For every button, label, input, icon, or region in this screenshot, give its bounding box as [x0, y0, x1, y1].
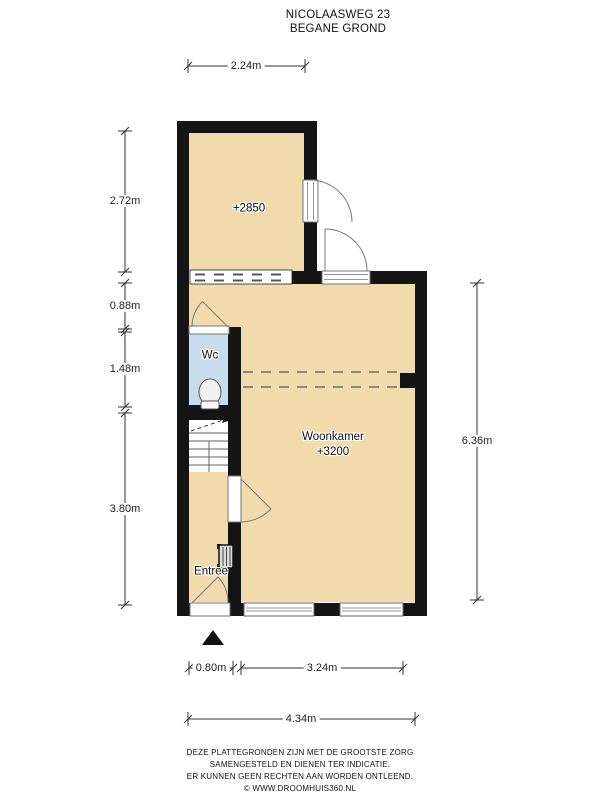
dim-label-left-wc: 1.48m	[107, 363, 144, 375]
disclaimer: DEZE PLATTEGRONDEN ZIJN MET DE GROOTSTE …	[0, 747, 600, 795]
toilet-icon	[199, 379, 221, 409]
door-frame	[190, 603, 230, 616]
dim-label-bottom-window: 3.24m	[304, 662, 341, 674]
page-title-floor: BEGANE GROND	[286, 22, 390, 36]
door-frame	[322, 271, 370, 284]
door-frame	[189, 326, 229, 334]
room-floors	[189, 133, 415, 602]
dim-label-left-extension: 2.72m	[107, 195, 144, 207]
disclaimer-copyright: © WWW.DROOMHUIS360.NL	[0, 783, 600, 795]
disclaimer-line-2: SAMENGESTELD EN DIENEN TER INDICATIE.	[0, 759, 600, 771]
window-left	[244, 603, 314, 616]
wc-label: Wc	[202, 349, 219, 364]
wall-top	[177, 121, 317, 133]
living-room-height: +3200	[302, 445, 364, 460]
extension-back-door	[303, 180, 352, 222]
wall-living-top-left	[292, 271, 322, 284]
door-swing-arc	[325, 229, 367, 271]
door-frame	[303, 180, 318, 222]
entry-label: Entree	[194, 565, 228, 580]
dim-label-right-living: 6.36m	[459, 435, 496, 447]
dim-label-bottom-total: 4.34m	[283, 713, 320, 725]
wall-bottom-left-corner	[177, 603, 190, 616]
entrance-arrow	[202, 630, 224, 645]
window-right	[340, 603, 403, 616]
wall-extension-right-upper	[304, 133, 317, 180]
living-back-door	[322, 229, 370, 284]
wall-left	[177, 121, 189, 615]
title-block: NICOLAASWEG 23 BEGANE GROND	[286, 8, 390, 36]
wall-bottom-pier	[314, 603, 340, 616]
dim-label-top-width: 2.24m	[228, 60, 265, 72]
living-room-floor-strip	[189, 284, 241, 327]
dim-label-bottom-door: 0.80m	[193, 662, 230, 674]
wall-bottom-segment	[230, 603, 244, 616]
living-room-name: Woonkamer	[302, 430, 364, 445]
page-title-address: NICOLAASWEG 23	[286, 8, 390, 22]
wall-extension-right-lower	[304, 222, 317, 271]
toilet-tank	[201, 401, 219, 409]
wall-stub	[400, 373, 415, 388]
dim-label-left-upper: 0.88m	[107, 300, 144, 312]
disclaimer-line-1: DEZE PLATTEGRONDEN ZIJN MET DE GROOTSTE …	[0, 747, 600, 759]
wall-bottom-right-corner	[403, 603, 427, 616]
disclaimer-line-3: ER KUNNEN GEEN RECHTEN AAN WORDEN ONTLEE…	[0, 771, 600, 783]
wall-right	[415, 271, 427, 615]
dim-label-left-lower: 3.80m	[107, 503, 144, 515]
floorplan-drawing	[0, 0, 600, 800]
floorplan-page: NICOLAASWEG 23 BEGANE GROND +2850 Wc Woo…	[0, 0, 600, 800]
passage-opening-frame	[190, 270, 292, 284]
door-frame	[228, 476, 241, 522]
passage-opening	[190, 270, 292, 284]
wall-corridor-upper	[228, 420, 241, 476]
extension-height-label: +2850	[233, 202, 265, 217]
living-room-label: Woonkamer +3200	[302, 430, 364, 460]
